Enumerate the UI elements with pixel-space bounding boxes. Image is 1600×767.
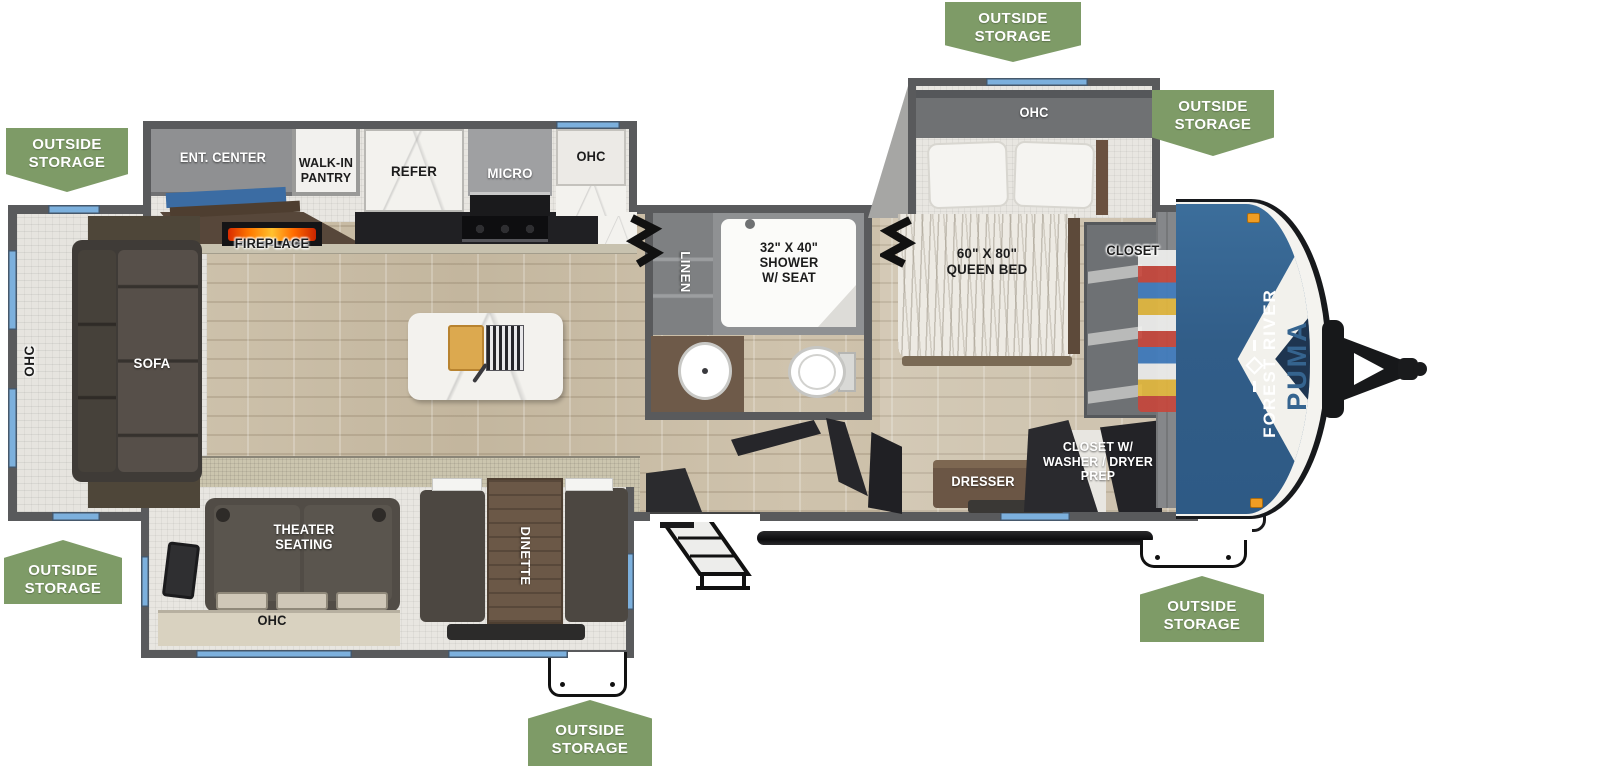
label-wd-line1: CLOSET W/ (1022, 440, 1174, 455)
stove-icon (462, 216, 548, 242)
label-ohc-bottom: OHC (244, 613, 301, 628)
queen-bed-mattress (898, 214, 1076, 360)
compartment-dot-r2 (1226, 555, 1231, 560)
label-pantry-line2: PANTRY (292, 171, 360, 186)
label-pantry-line1: WALK-IN (292, 156, 360, 171)
banner-line1: OUTSIDE (4, 562, 122, 580)
cutting-board-icon (448, 325, 484, 371)
label-ohc-bedroom: OHC (1004, 105, 1065, 120)
banner-line2: STORAGE (1152, 116, 1274, 134)
banner-line1: OUTSIDE (6, 136, 128, 154)
dinette-bench-left (420, 490, 485, 622)
window-rear-left-1 (8, 250, 17, 330)
label-sofa: SOFA (124, 356, 181, 372)
pocket-door-icon-left (626, 214, 664, 268)
label-micro: MICRO (472, 166, 548, 182)
label-refer: REFER (370, 164, 457, 180)
pocket-door-icon-right (880, 216, 916, 268)
banner-line1: OUTSIDE (1140, 598, 1264, 616)
label-wd-line2: WASHER / DRYER (1022, 455, 1174, 470)
bed-side-rail (1068, 218, 1080, 354)
entry-door-opening (650, 512, 760, 522)
bath-sink-drain (702, 368, 708, 374)
window-kitchen-slide (556, 121, 620, 129)
window-rear-top (48, 205, 100, 214)
banner-outside-storage-top-right: OUTSIDE STORAGE (1152, 90, 1274, 156)
label-shower-line2: SHOWER (732, 255, 846, 270)
label-shower-line3: W/ SEAT (732, 270, 846, 285)
label-closet: CLOSET (1092, 243, 1174, 258)
window-living-slide-bottom-2 (448, 650, 568, 658)
label-queen-bed: 60" X 80" QUEEN BED (921, 246, 1054, 277)
theater-headrest-right (372, 508, 386, 522)
label-queen-bed-line2: QUEEN BED (921, 262, 1054, 278)
sofa-back (78, 250, 116, 472)
banner-outside-storage-left-bottom: OUTSIDE STORAGE (4, 540, 122, 604)
theater-footrest-1 (216, 592, 268, 610)
bedroom-slide-wedge (868, 86, 908, 218)
window-rear-bottom (52, 512, 100, 521)
window-bottom-right (1000, 512, 1070, 521)
bedside-trim (1096, 140, 1108, 215)
label-pantry: WALK-IN PANTRY (292, 156, 360, 185)
window-living-slide-left (141, 556, 149, 607)
hitch-icon (1316, 312, 1428, 430)
marker-light-bottom (1250, 498, 1263, 508)
brand-puma: PUMA (1284, 300, 1314, 430)
label-theater-seating: THEATER SEATING (255, 522, 354, 552)
banner-line1: OUTSIDE (1152, 98, 1274, 116)
banner-outside-storage-bottom-center: OUTSIDE STORAGE (528, 700, 652, 766)
label-wd-line3: PREP (1022, 469, 1174, 484)
label-dinette: DINETTE (516, 511, 532, 601)
compartment-dot-c2 (610, 682, 615, 687)
label-shower: 32" X 40" SHOWER W/ SEAT (732, 240, 846, 285)
label-theater-line1: THEATER (255, 522, 354, 537)
banner-line1: OUTSIDE (528, 722, 652, 740)
dinette-bench-right (565, 488, 628, 622)
window-rear-left-2 (8, 388, 17, 468)
banner-outside-storage-top-center: OUTSIDE STORAGE (945, 2, 1081, 62)
label-ent-center: ENT. CENTER (161, 150, 285, 165)
banner-line2: STORAGE (6, 154, 128, 172)
label-fireplace: FIREPLACE (225, 236, 320, 251)
window-bedroom-slide (986, 78, 1088, 86)
brand-emblem-dash-top (1253, 340, 1256, 351)
kitchen-ohc-counter (556, 186, 626, 216)
bed-footboard (902, 356, 1072, 366)
label-linen: LINEN (676, 240, 692, 304)
dinette-placemat-left (432, 478, 482, 491)
microwave-cabinet (468, 129, 552, 196)
slide-tv-icon (162, 541, 200, 599)
banner-line1: OUTSIDE (945, 10, 1081, 28)
compartment-dot-c1 (560, 682, 565, 687)
brand-forest-river: FOREST RIVER (1261, 243, 1283, 483)
compartment-dot-r1 (1155, 555, 1160, 560)
label-dresser: DRESSER (937, 474, 1028, 489)
label-ohc-kitchen: OHC (561, 149, 622, 164)
entry-steps-icon (652, 516, 756, 592)
brand-emblem-dash-bottom (1253, 381, 1256, 392)
dinette-mat (447, 624, 585, 640)
pillow-left (927, 141, 1009, 210)
theater-footrest-2 (276, 592, 328, 610)
awning-rail (757, 531, 1153, 545)
shower-head-icon (745, 219, 755, 229)
label-theater-line2: SEATING (255, 537, 354, 552)
banner-line2: STORAGE (4, 580, 122, 598)
label-ohc-rear: OHC (23, 329, 41, 393)
window-living-slide-bottom-1 (196, 650, 352, 658)
banner-line2: STORAGE (945, 28, 1081, 46)
banner-outside-storage-left-top: OUTSIDE STORAGE (6, 128, 128, 192)
theater-footrest-3 (336, 592, 388, 610)
toilet-seat-line (798, 354, 836, 390)
banner-line2: STORAGE (1140, 616, 1264, 634)
dinette-placemat-right (565, 478, 613, 491)
label-shower-line1: 32" X 40" (732, 240, 846, 255)
label-wd-closet: CLOSET W/ WASHER / DRYER PREP (1022, 440, 1174, 484)
storage-compartment-outline-right (1140, 540, 1247, 568)
theater-headrest-left (216, 508, 230, 522)
microwave-icon (470, 192, 550, 216)
marker-light-top (1247, 213, 1260, 223)
label-queen-bed-line1: 60" X 80" (921, 246, 1054, 262)
rv-floorplan: FOREST RIVER PUMA ENT. CENTER WALK-IN PA… (0, 0, 1600, 767)
sofa-side-table-bottom (88, 478, 200, 508)
banner-outside-storage-bottom-right: OUTSIDE STORAGE (1140, 576, 1264, 642)
sink-cover-icon (486, 325, 524, 371)
storage-compartment-outline-center (548, 652, 627, 697)
pillow-right (1013, 141, 1095, 210)
banner-line2: STORAGE (528, 740, 652, 758)
